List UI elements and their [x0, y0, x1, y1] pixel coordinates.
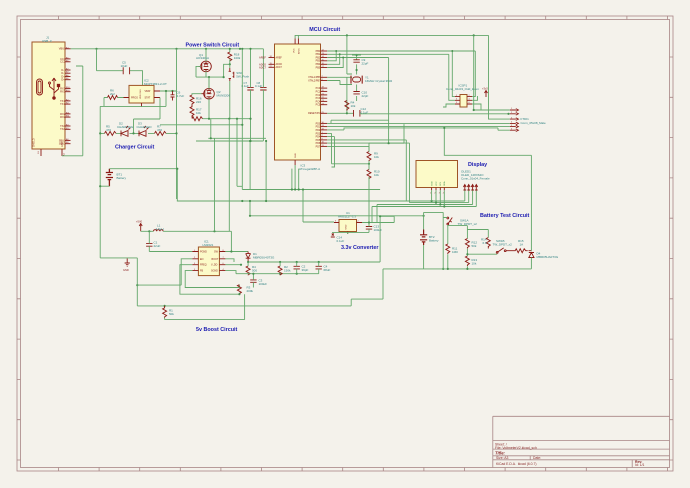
svg-text:220: 220 [196, 100, 201, 104]
svg-text:Battery: Battery [429, 239, 439, 243]
svg-text:LM2621: LM2621 [203, 243, 214, 247]
svg-text:RX1: RX1 [60, 90, 66, 94]
svg-text:5v Boost Circuit: 5v Boost Circuit [196, 327, 238, 333]
svg-text:GND: GND [346, 224, 348, 229]
svg-text:500: 500 [252, 269, 257, 273]
svg-text:VCC: VCC [293, 48, 295, 53]
svg-text:XTAL2/PB7: XTAL2/PB7 [308, 79, 321, 82]
svg-text:68uF: 68uF [324, 268, 331, 272]
svg-text:10k: 10k [374, 155, 379, 159]
svg-text:V_DD: V_DD [211, 264, 218, 267]
svg-text:STAT: STAT [145, 97, 151, 100]
svg-text:GND: GND [431, 181, 433, 186]
svg-text:200k: 200k [247, 289, 254, 293]
svg-text:150k: 150k [284, 269, 291, 273]
svg-text:10k: 10k [472, 261, 477, 265]
svg-text:MCU Circuit: MCU Circuit [309, 27, 340, 33]
svg-text:1M0: 1M0 [452, 250, 458, 254]
svg-text:0.1uF: 0.1uF [337, 239, 345, 243]
svg-text:22uF: 22uF [154, 244, 161, 248]
svg-text:File: VoltmeterV2.kicad_sch: File: VoltmeterV2.kicad_sch [495, 446, 537, 450]
svg-text:ATmega328P-A: ATmega328P-A [299, 167, 320, 171]
svg-text:GND: GND [295, 153, 297, 158]
svg-text:MCP73831-2-OT: MCP73831-2-OT [144, 82, 167, 86]
svg-text:SHIELD: SHIELD [33, 138, 36, 147]
svg-text:MUN5206: MUN5206 [217, 94, 231, 98]
svg-text:KiCad E.D.A. kicad (6.0.7): KiCad E.D.A. kicad (6.0.7) [496, 462, 537, 466]
svg-text:22pF: 22pF [362, 61, 369, 65]
svg-text:4.7uF: 4.7uF [177, 94, 185, 98]
svg-text:ADC7: ADC7 [259, 65, 266, 69]
svg-text:10k: 10k [196, 111, 201, 115]
svg-text:AVCC: AVCC [298, 48, 301, 54]
svg-text:AMS1117-3.3: AMS1117-3.3 [338, 214, 356, 218]
svg-text:39pF: 39pF [302, 268, 309, 272]
svg-text:GND: GND [123, 268, 129, 272]
svg-text:10k: 10k [374, 173, 379, 177]
svg-text:D+: D+ [61, 78, 65, 82]
svg-text:RESET/PC6: RESET/PC6 [308, 112, 322, 115]
svg-text:AREF: AREF [276, 56, 283, 59]
svg-text:4.6uH: 4.6uH [156, 227, 164, 231]
svg-text:PC5: PC5 [316, 104, 321, 107]
svg-text:TX2: TX2 [60, 127, 65, 131]
svg-text:GND: GND [61, 141, 64, 147]
svg-text:Battery Test Circuit: Battery Test Circuit [480, 213, 530, 219]
svg-text:CC2: CC2 [60, 60, 66, 64]
svg-text:VBAT: VBAT [145, 90, 152, 93]
svg-text:Conn_01x04_Female: Conn_01x04_Female [461, 177, 490, 181]
svg-text:50k: 50k [169, 312, 174, 316]
svg-text:AO3401A: AO3401A [196, 56, 209, 60]
svg-text:RX2: RX2 [60, 115, 66, 119]
svg-text:Charger Circuit: Charger Circuit [115, 145, 154, 151]
svg-text:PB5: PB5 [316, 66, 321, 69]
svg-text:PGND: PGND [200, 251, 207, 254]
svg-text:0.1uF: 0.1uF [255, 84, 262, 88]
svg-text:SDA: SDA [443, 181, 446, 186]
svg-text:100uF: 100uF [374, 228, 383, 232]
svg-text:PROG: PROG [131, 97, 138, 100]
svg-text:+3v3: +3v3 [482, 87, 488, 91]
svg-text:PD7: PD7 [316, 145, 321, 148]
svg-text:Size: A3: Size: A3 [496, 456, 509, 460]
svg-text:100uF: 100uF [259, 282, 268, 286]
svg-text:CHARGING: CHARGING [117, 125, 134, 129]
svg-text:FB: FB [200, 270, 203, 273]
svg-text:Power Switch Circuit: Power Switch Circuit [186, 43, 240, 49]
svg-text:Id: 1/1: Id: 1/1 [635, 463, 645, 467]
svg-text:2k2: 2k2 [110, 92, 115, 96]
svg-text:Battery: Battery [117, 176, 127, 180]
svg-text:SGND: SGND [211, 270, 218, 273]
svg-text:BOOT: BOOT [212, 258, 219, 261]
svg-text:VDD VSS: VDD VSS [140, 89, 142, 99]
svg-text:EN: EN [200, 258, 204, 261]
svg-text:TX1: TX1 [60, 102, 65, 106]
svg-text:MBR05U40T3G: MBR05U40T3G [253, 256, 275, 260]
svg-text:USB_C: USB_C [42, 39, 53, 43]
svg-text:Conn_02x03_Odd_Even: Conn_02x03_Odd_Even [446, 87, 479, 91]
svg-text:Title:: Title: [495, 451, 506, 456]
svg-text:50k: 50k [472, 244, 477, 248]
svg-text:ADC7: ADC7 [276, 66, 283, 69]
svg-text:VCC: VCC [436, 181, 438, 186]
svg-text:10uF: 10uF [121, 64, 128, 68]
svg-text:Display: Display [468, 162, 487, 168]
svg-text:Conn_05x08_Male: Conn_05x08_Male [521, 121, 547, 125]
svg-text:TW_DPDT_x2: TW_DPDT_x2 [493, 242, 513, 246]
svg-text:100k: 100k [234, 56, 241, 60]
svg-text:FREQ: FREQ [200, 264, 207, 267]
svg-text:AREF: AREF [259, 56, 266, 60]
svg-text:10k: 10k [351, 104, 356, 108]
svg-text:470: 470 [106, 128, 111, 132]
svg-text:+5V0: +5V0 [136, 220, 143, 224]
svg-text:3.3v Converter: 3.3v Converter [341, 245, 379, 251]
svg-text:1A: 1A [520, 242, 524, 246]
svg-text:6.8: 6.8 [483, 241, 488, 245]
svg-text:MBR05UA0T3G: MBR05UA0T3G [537, 255, 559, 259]
svg-text:5W_Push: 5W_Push [236, 75, 249, 79]
svg-text:470: 470 [157, 128, 162, 132]
svg-text:CHARGED: CHARGED [137, 125, 153, 129]
svg-text:22pF: 22pF [362, 94, 369, 98]
svg-text:Date:: Date: [533, 456, 541, 460]
